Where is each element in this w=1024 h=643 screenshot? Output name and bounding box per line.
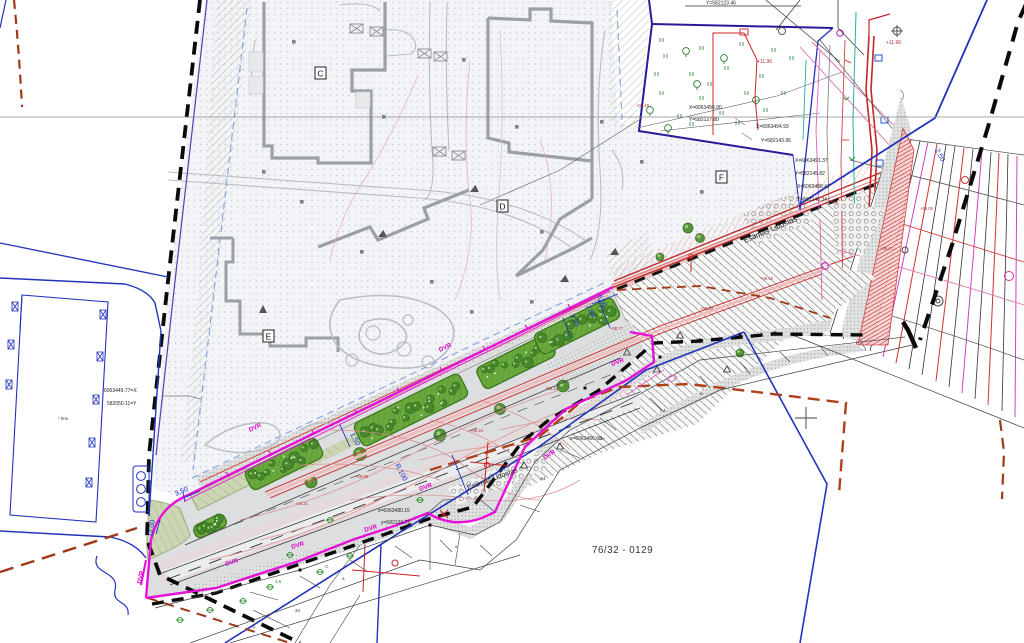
- svg-text:F: F: [719, 173, 724, 183]
- svg-text:X=6063496.90: X=6063496.90: [689, 105, 722, 111]
- svg-text:+09.12: +09.12: [545, 386, 559, 391]
- svg-text:G: G: [252, 624, 256, 629]
- svg-text:+08.40: +08.40: [760, 276, 774, 281]
- svg-text:A4: A4: [540, 476, 546, 481]
- svg-text:C: C: [317, 69, 323, 79]
- svg-text:Y=582145.82: Y=582145.82: [795, 171, 825, 177]
- svg-text:+08.17: +08.17: [880, 246, 894, 251]
- svg-text:+09.34: +09.34: [470, 428, 484, 433]
- svg-text:+08.05: +08.05: [920, 206, 934, 211]
- svg-text:34: 34: [295, 608, 301, 613]
- svg-text:Y=582148.34: Y=582148.34: [797, 197, 827, 203]
- svg-text:+09.88: +09.88: [355, 474, 369, 479]
- svg-text:4,5: 4,5: [275, 579, 282, 584]
- svg-text:y=582139.73: y=582139.73: [381, 520, 410, 526]
- svg-text:+08.49: +08.49: [636, 103, 650, 108]
- svg-text:Y=582143.96: Y=582143.96: [761, 138, 791, 144]
- svg-text:x=6063466.68: x=6063466.68: [570, 436, 602, 442]
- svg-text:6063449.77=X: 6063449.77=X: [104, 388, 137, 394]
- svg-text:E: E: [266, 332, 272, 342]
- svg-text:* lms: * lms: [58, 416, 69, 421]
- svg-text:582050.11=Y: 582050.11=Y: [107, 401, 137, 407]
- svg-text:X=6063494.93: X=6063494.93: [756, 124, 789, 130]
- svg-text:A4: A4: [660, 408, 666, 413]
- svg-text:X=6063488.47: X=6063488.47: [797, 184, 830, 190]
- svg-text:+08.77: +08.77: [610, 326, 624, 331]
- svg-text:G: G: [325, 564, 329, 569]
- svg-text:Y=582127.80: Y=582127.80: [689, 117, 719, 123]
- svg-text:+08.62: +08.62: [700, 306, 714, 311]
- svg-text:D: D: [499, 202, 505, 212]
- svg-text:+10.21: +10.21: [295, 501, 309, 506]
- svg-text:76/32 - 0129: 76/32 - 0129: [592, 545, 653, 556]
- svg-text:+11.96: +11.96: [886, 40, 901, 46]
- svg-text:x=6063480.15: x=6063480.15: [378, 508, 410, 514]
- svg-text:+11.96: +11.96: [757, 59, 772, 65]
- svg-text:3v: 3v: [600, 436, 606, 441]
- svg-text:Y=582123.46: Y=582123.46: [706, 1, 736, 7]
- svg-text:X=6063491.37: X=6063491.37: [795, 158, 828, 164]
